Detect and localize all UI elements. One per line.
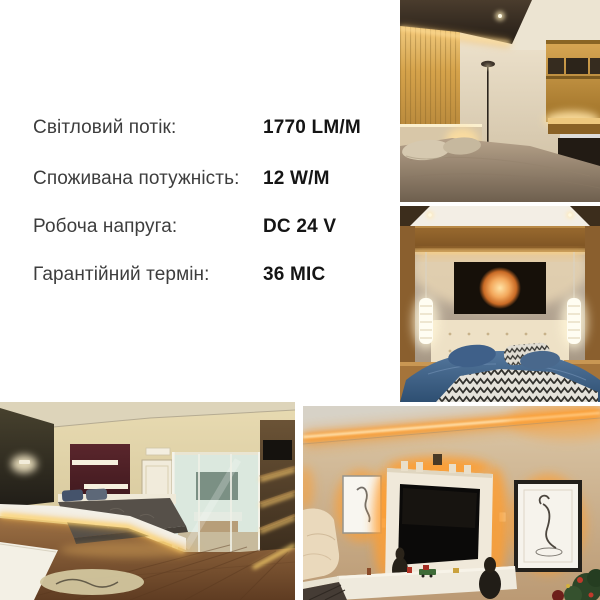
spec-label: Світловий потік:	[33, 117, 263, 139]
spec-label: Гарантійний термін:	[33, 264, 263, 286]
spec-value: 1770 LM/M	[263, 117, 361, 139]
photo-livingroom-tv	[303, 406, 600, 600]
artwork-right	[516, 482, 580, 570]
spec-label: Споживана потужність:	[33, 168, 263, 190]
product-infographic: Світловий потік: 1770 LM/M Споживана пот…	[0, 0, 600, 600]
spec-label: Робоча напруга:	[33, 216, 263, 238]
photo-bedroom-pendants	[400, 206, 600, 402]
spec-value: 36 МІС	[263, 264, 325, 286]
spec-row-voltage: Робоча напруга: DC 24 V	[33, 216, 393, 238]
spec-row-warranty: Гарантійний термін: 36 МІС	[33, 264, 393, 286]
pendant-light-left	[413, 295, 439, 349]
bedroom-pendants-art	[400, 206, 600, 402]
photo-platform-bed	[0, 402, 295, 600]
spec-row-luminous-flux: Світловий потік: 1770 LM/M	[33, 117, 393, 139]
photo-bedroom-cove-lighting	[400, 0, 600, 202]
tv	[398, 484, 480, 565]
spec-value: 12 W/M	[263, 168, 330, 190]
wardrobe	[546, 40, 600, 122]
wood-beam	[408, 226, 592, 252]
pendant-light-right	[561, 295, 587, 349]
bedroom-cove-art	[400, 0, 600, 202]
rug	[40, 569, 144, 595]
spec-value: DC 24 V	[263, 216, 336, 238]
spec-row-power: Споживана потужність: 12 W/M	[33, 168, 393, 190]
livingroom-tv-art	[303, 406, 600, 600]
platform-bed-art	[0, 402, 295, 600]
artwork-moon	[454, 262, 546, 314]
dark-accent-wall	[0, 408, 54, 508]
desk	[548, 118, 600, 134]
specs-panel: Світловий потік: 1770 LM/M Споживана пот…	[33, 0, 398, 402]
air-vent	[146, 448, 170, 455]
